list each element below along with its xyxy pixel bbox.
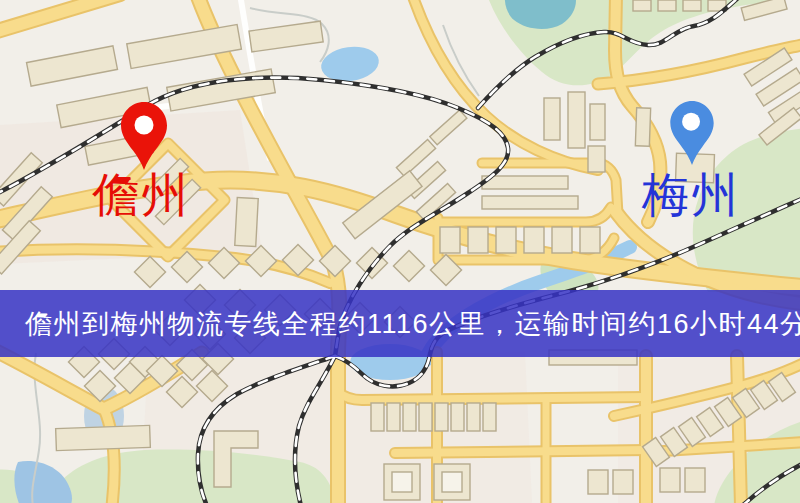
location-pin-icon	[117, 101, 171, 171]
location-pin-icon	[666, 100, 718, 166]
map-screenshot: 儋州 梅州 儋州到梅州物流专线全程约1116公里，运输时间约16小时44分钟.	[0, 0, 800, 503]
marker-label-meizhou: 梅州	[642, 172, 740, 219]
route-info-text: 儋州到梅州物流专线全程约1116公里，运输时间约16小时44分钟.	[0, 306, 800, 342]
map-background	[0, 0, 800, 503]
marker-danzhou[interactable]	[117, 101, 171, 171]
route-info-banner: 儋州到梅州物流专线全程约1116公里，运输时间约16小时44分钟.	[0, 290, 800, 357]
marker-meizhou[interactable]	[666, 100, 718, 166]
marker-label-danzhou: 儋州	[92, 172, 190, 219]
